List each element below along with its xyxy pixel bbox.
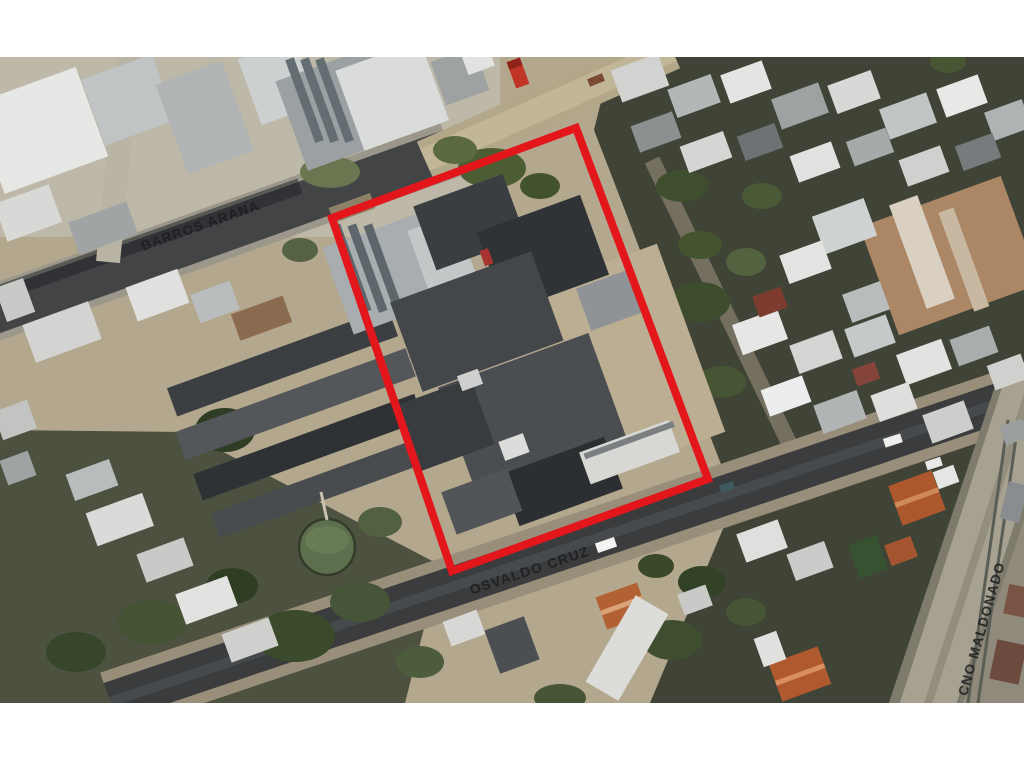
satellite-map: BARROS ARANA OSVALDO CRUZ CNO MALDONADO [0,0,1024,768]
aerial-photo-page: BARROS ARANA OSVALDO CRUZ CNO MALDONADO [0,0,1024,768]
